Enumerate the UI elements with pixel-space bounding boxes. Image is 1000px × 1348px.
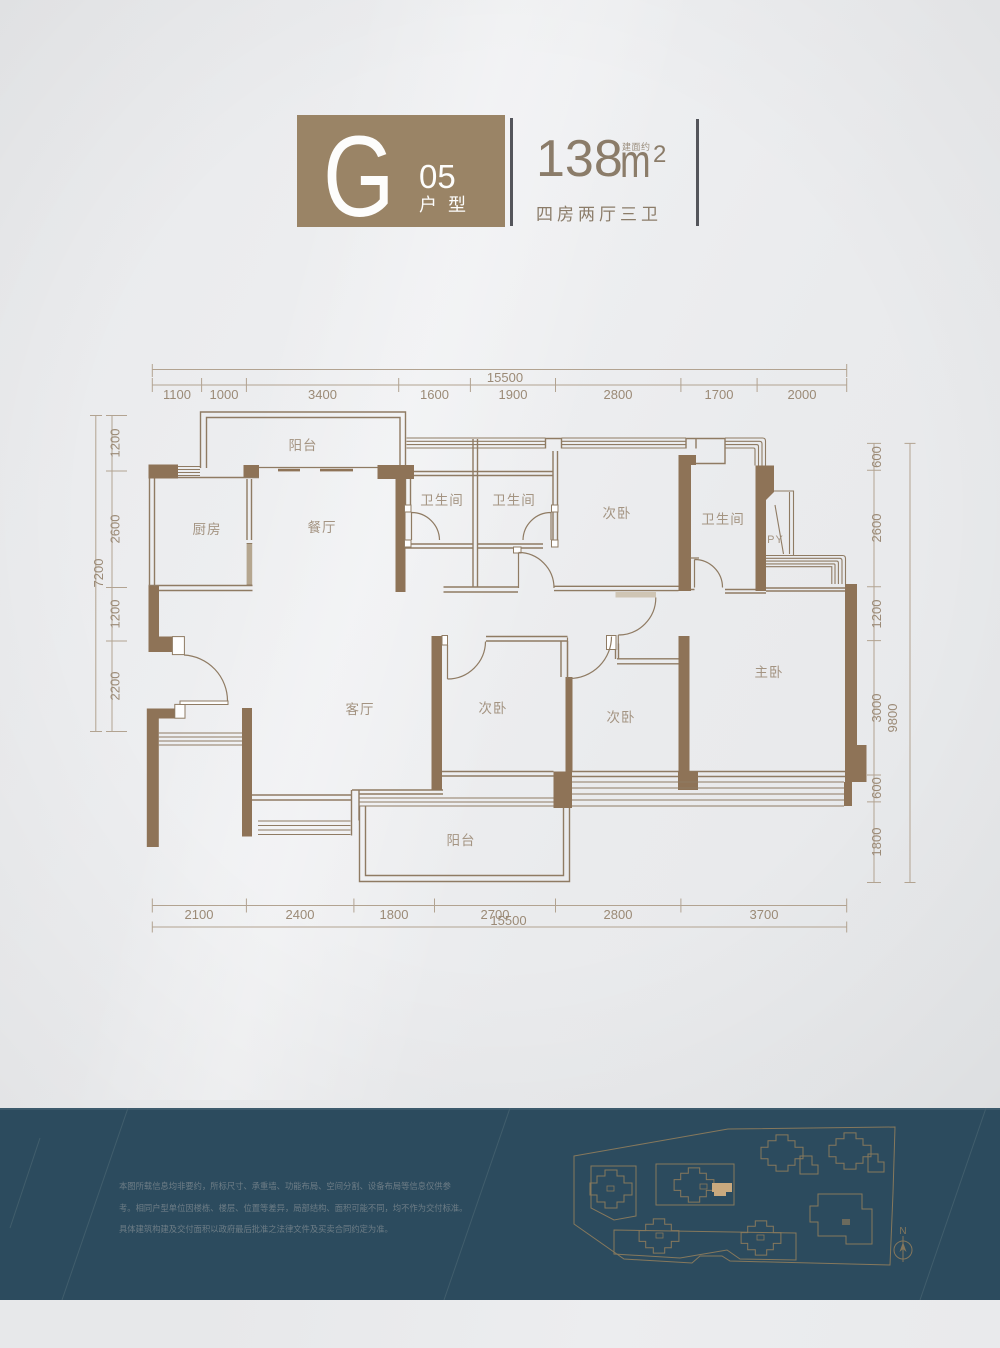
svg-text:1000: 1000 bbox=[210, 387, 239, 402]
svg-text:次卧: 次卧 bbox=[479, 701, 508, 716]
svg-text:1600: 1600 bbox=[420, 387, 449, 402]
svg-text:卫生间: 卫生间 bbox=[492, 493, 536, 508]
svg-text:9800: 9800 bbox=[885, 704, 900, 733]
svg-text:PY: PY bbox=[767, 534, 784, 546]
svg-text:阳台: 阳台 bbox=[447, 833, 476, 848]
svg-text:2600: 2600 bbox=[108, 515, 123, 544]
svg-text:600: 600 bbox=[869, 777, 884, 799]
svg-text:1100: 1100 bbox=[163, 387, 191, 402]
svg-text:15500: 15500 bbox=[490, 913, 526, 928]
svg-text:2000: 2000 bbox=[788, 387, 817, 402]
svg-text:2600: 2600 bbox=[869, 514, 884, 543]
svg-text:客厅: 客厅 bbox=[346, 701, 375, 717]
svg-text:1700: 1700 bbox=[705, 387, 734, 402]
svg-text:1800: 1800 bbox=[869, 828, 884, 857]
svg-text:7200: 7200 bbox=[91, 559, 106, 588]
svg-text:1800: 1800 bbox=[380, 907, 409, 922]
svg-text:N: N bbox=[899, 1226, 906, 1237]
svg-text:主卧: 主卧 bbox=[755, 665, 784, 680]
svg-text:卫生间: 卫生间 bbox=[420, 493, 464, 508]
svg-text:2400: 2400 bbox=[286, 907, 315, 922]
svg-text:次卧: 次卧 bbox=[607, 710, 636, 725]
svg-text:2800: 2800 bbox=[604, 907, 633, 922]
svg-text:次卧: 次卧 bbox=[603, 506, 632, 521]
svg-text:1200: 1200 bbox=[869, 600, 884, 629]
svg-text:600: 600 bbox=[869, 446, 884, 468]
svg-text:15500: 15500 bbox=[487, 370, 523, 385]
svg-text:3400: 3400 bbox=[308, 387, 337, 402]
svg-text:阳台: 阳台 bbox=[289, 438, 318, 453]
svg-text:3700: 3700 bbox=[750, 907, 779, 922]
svg-text:2200: 2200 bbox=[108, 672, 123, 701]
svg-text:2800: 2800 bbox=[604, 387, 633, 402]
svg-text:1200: 1200 bbox=[108, 429, 123, 458]
svg-text:卫生间: 卫生间 bbox=[701, 512, 745, 527]
svg-text:1200: 1200 bbox=[108, 600, 123, 629]
svg-text:餐厅: 餐厅 bbox=[308, 520, 337, 535]
svg-text:1900: 1900 bbox=[499, 387, 528, 402]
svg-text:厨房: 厨房 bbox=[193, 522, 222, 537]
svg-text:2100: 2100 bbox=[185, 907, 214, 922]
svg-text:3000: 3000 bbox=[869, 694, 884, 723]
